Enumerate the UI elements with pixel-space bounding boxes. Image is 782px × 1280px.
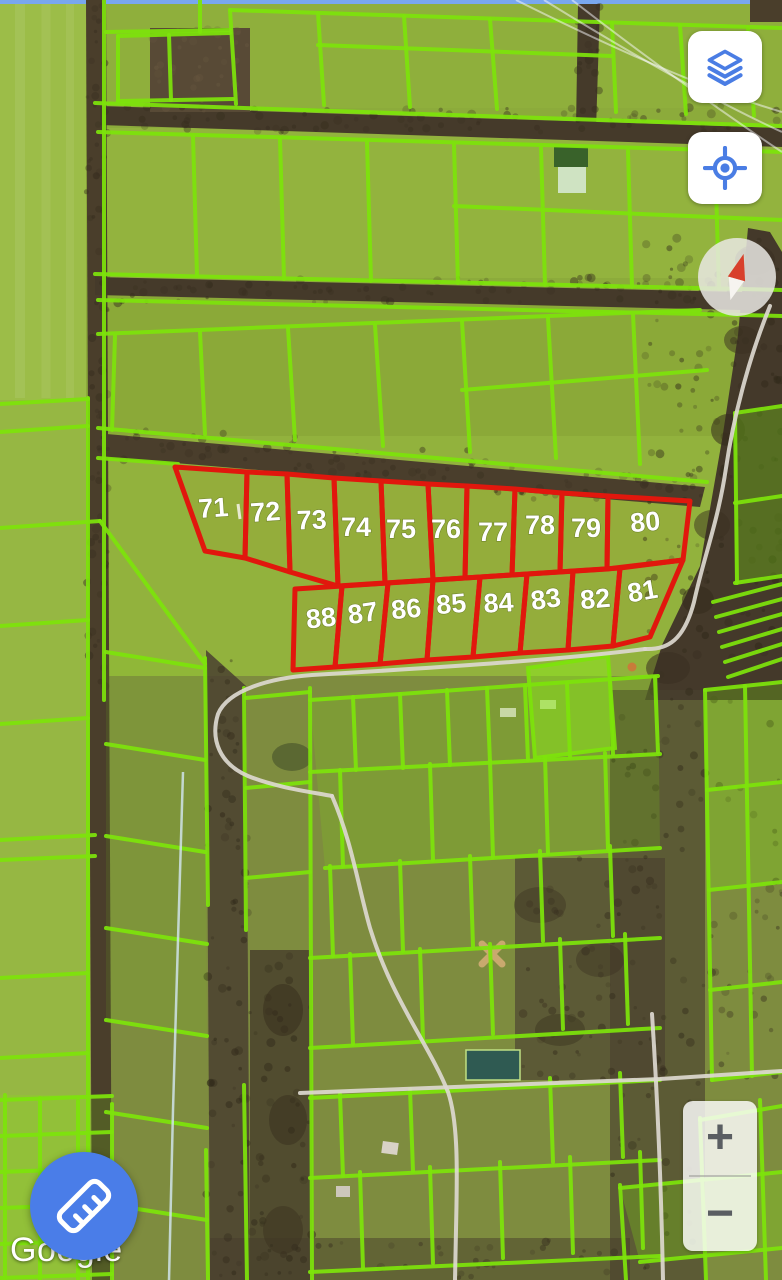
parcel-number-label: 86 — [390, 593, 423, 626]
layers-button[interactable] — [688, 31, 762, 103]
maps-app-screen: 717273747576777879808182838485868788 — [0, 0, 782, 1280]
parcel-number-label: 81 — [625, 574, 660, 609]
red-parcel-73[interactable]: 73 — [287, 474, 338, 586]
parcel-number-label: 87 — [346, 596, 380, 630]
parcel-number-label: 84 — [483, 587, 515, 619]
layers-icon — [703, 45, 747, 89]
red-parcel-77[interactable]: 77 — [465, 486, 515, 578]
parcel-number-label: 71 — [197, 492, 229, 524]
parcel-number-label: 80 — [629, 506, 662, 539]
zoom-out-button[interactable]: − — [683, 1177, 757, 1251]
zoom-in-button[interactable]: + — [683, 1101, 757, 1175]
parcel-number-label: 78 — [525, 510, 555, 540]
parcel-number-label: 74 — [341, 512, 371, 542]
red-parcel-76[interactable]: 76 — [428, 484, 467, 580]
parcel-number-label: 76 — [431, 514, 461, 544]
ruler-icon — [52, 1174, 116, 1238]
red-parcel-85[interactable]: 85 — [427, 577, 480, 660]
red-parcel-79[interactable]: 79 — [560, 493, 608, 572]
red-parcel-82[interactable]: 82 — [568, 568, 620, 650]
red-parcel-75[interactable]: 75 — [381, 481, 433, 583]
compass-button[interactable] — [695, 238, 782, 318]
red-parcel-74[interactable]: 74 — [334, 478, 385, 586]
locate-button[interactable] — [688, 132, 762, 204]
red-parcel-80[interactable]: 80 — [607, 496, 690, 569]
red-parcel-88[interactable]: 88 — [293, 586, 342, 670]
red-parcel-78[interactable]: 78 — [512, 489, 562, 575]
parcel-number-label: 85 — [435, 588, 468, 621]
parcel-number-label: 79 — [571, 513, 601, 543]
zoom-control: + − — [683, 1101, 757, 1251]
satellite-map-canvas[interactable]: 717273747576777879808182838485868788 — [0, 0, 782, 1280]
parcel-number-label: 73 — [296, 504, 327, 535]
parcel-number-label: 75 — [386, 514, 416, 544]
parcel-number-label: 77 — [478, 517, 508, 547]
parcel-number-label: 88 — [305, 602, 338, 635]
measure-button[interactable] — [30, 1152, 138, 1260]
parcel-number-label: 82 — [579, 583, 612, 616]
locate-icon — [703, 146, 747, 190]
red-parcel-72[interactable]: 72 — [245, 472, 290, 572]
parcel-number-label: 83 — [529, 582, 563, 616]
parcel-number-label: 72 — [249, 496, 281, 528]
